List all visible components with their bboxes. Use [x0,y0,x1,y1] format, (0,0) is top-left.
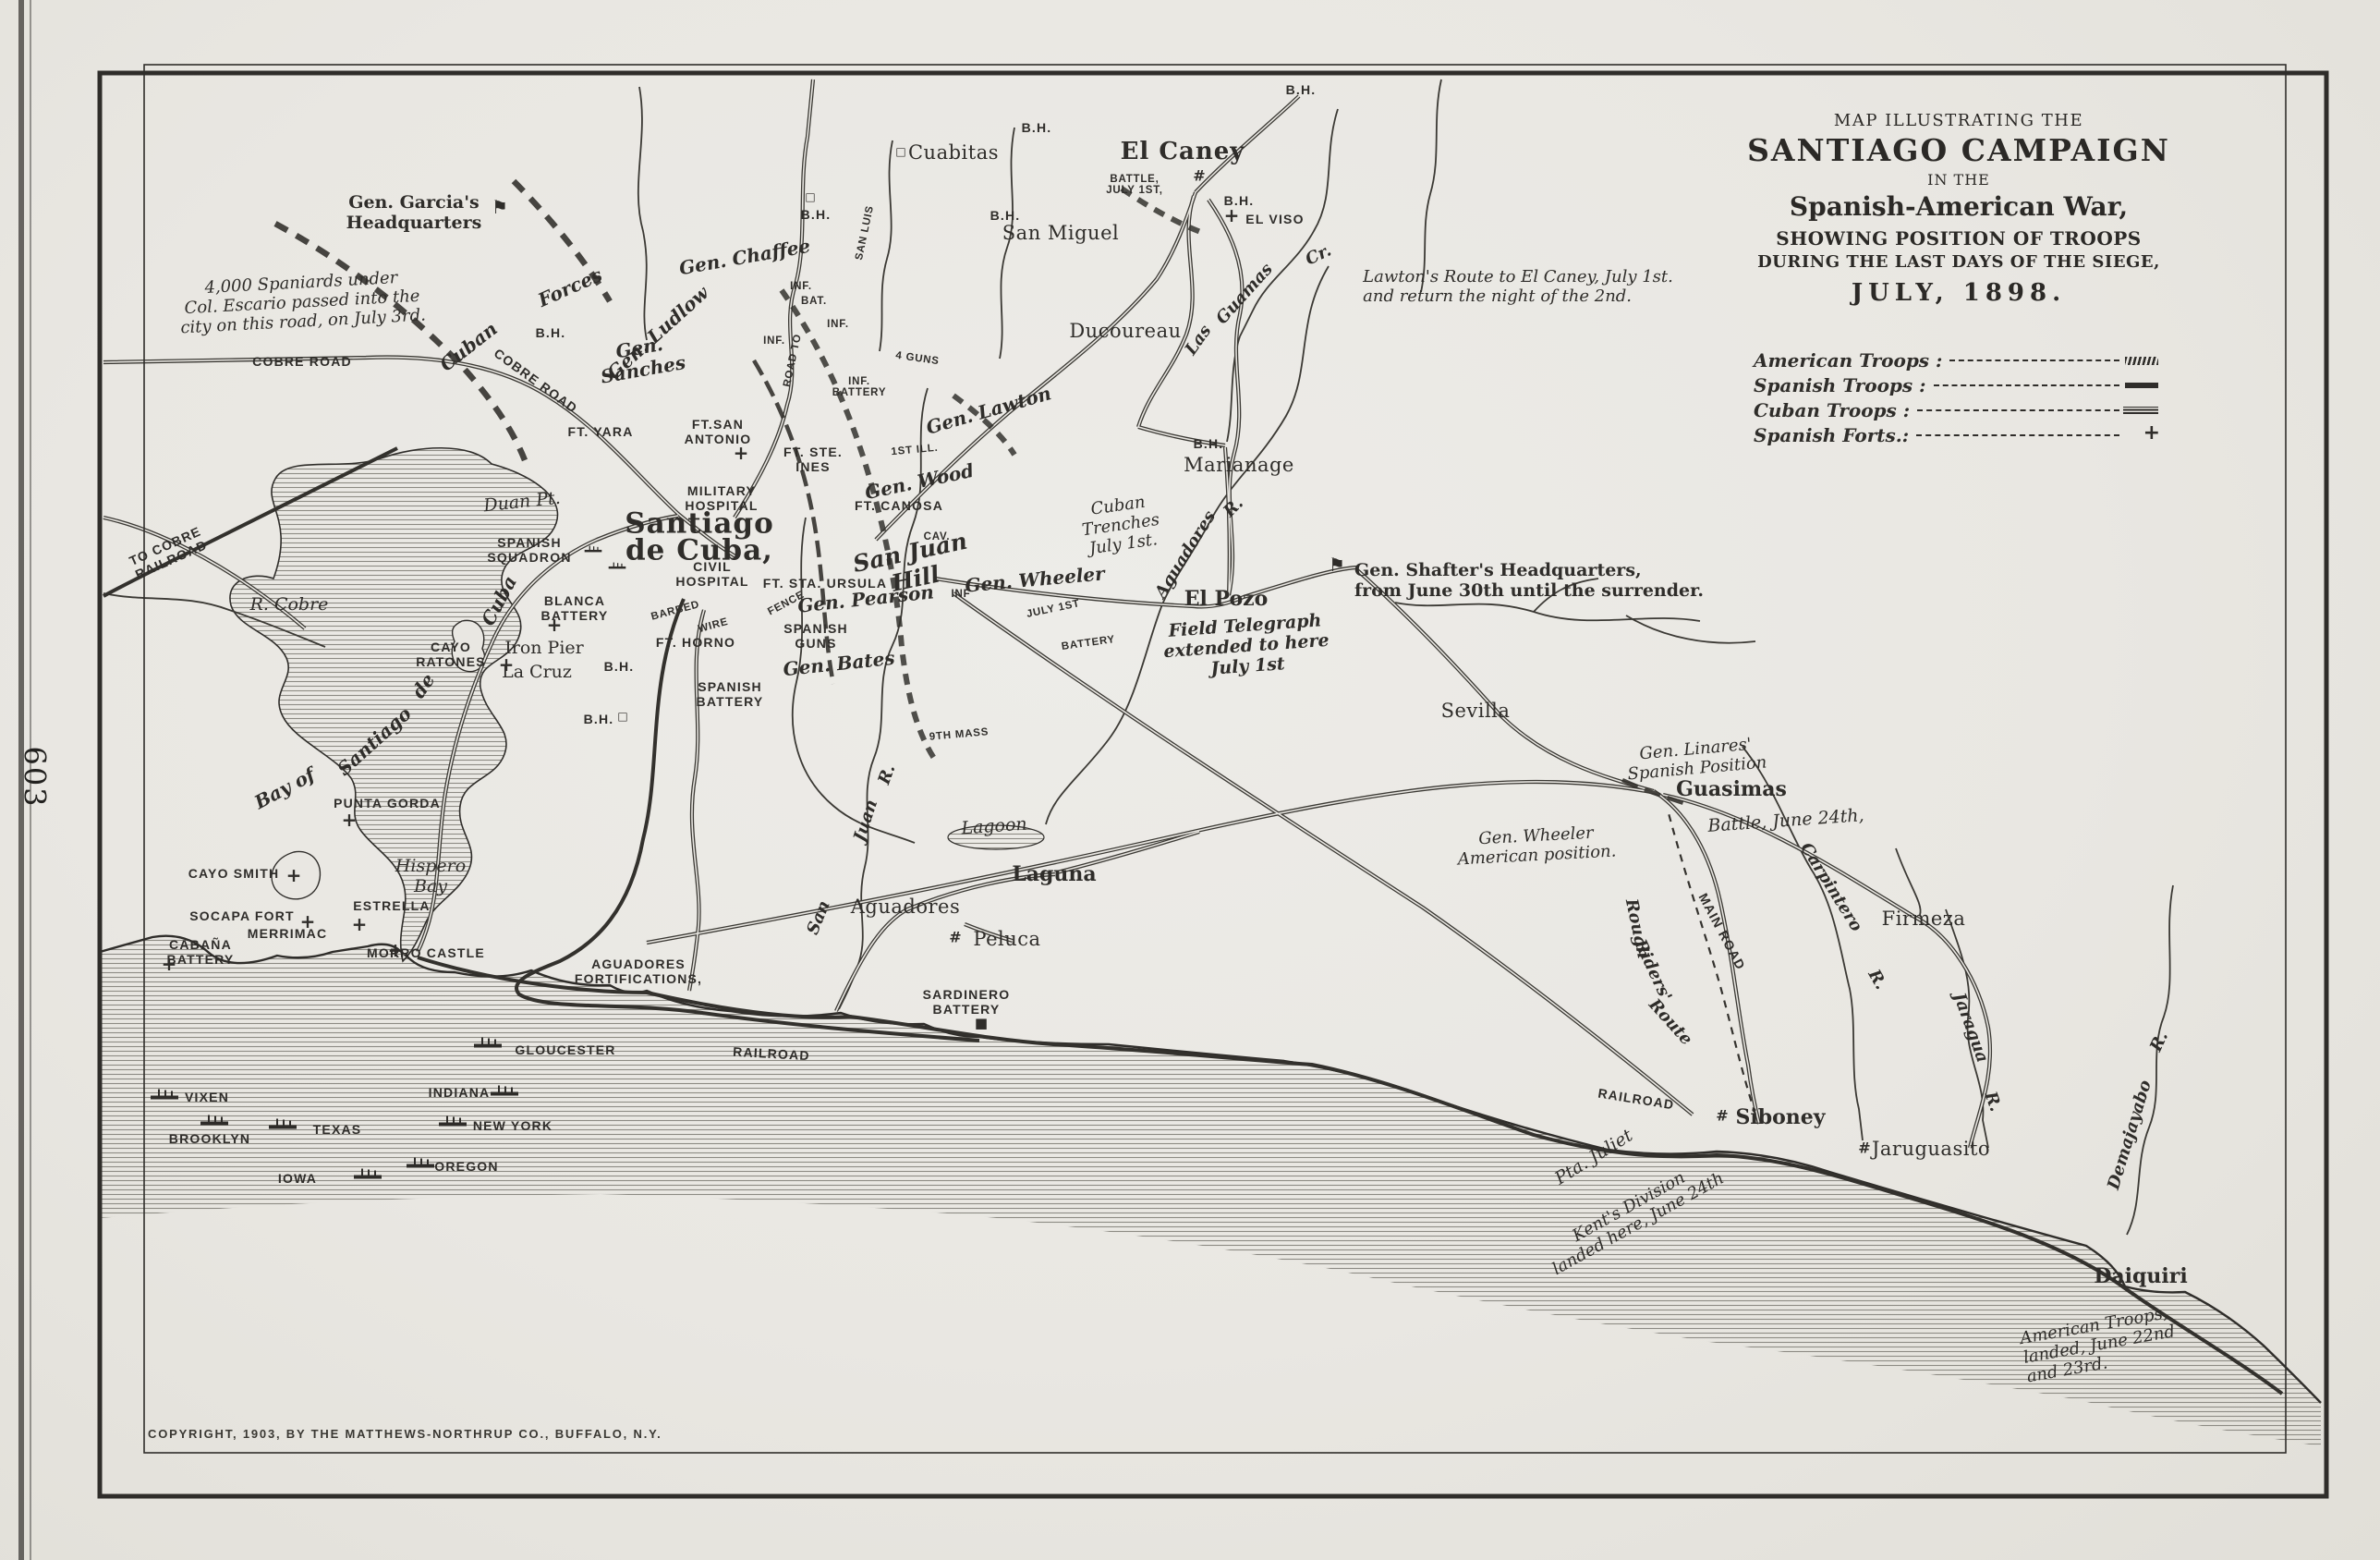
legend-item-label: Cuban Troops : [1754,399,1910,421]
map-title-block: MAP ILLUSTRATING THESANTIAGO CAMPAIGNIN … [1744,111,2173,307]
map-label: Aguadores [851,896,960,918]
map-label: Cuban Trenches July 1st. [1078,491,1163,559]
ship-icon [609,563,626,569]
map-label: Hispero Bay [395,856,466,896]
ship-icon [269,1119,297,1129]
map-label: CIVIL HOSPITAL [675,559,748,589]
map-label: NEW YORK [473,1118,552,1133]
garcia-hq-flag-icon: ⚑ [492,196,508,218]
legend-item: Spanish Troops : [1754,372,2158,397]
map-label: BAT. [801,296,827,307]
ship-icon [407,1158,434,1168]
map-label: MERRIMAC [248,926,328,941]
legend-item-label: American Troops : [1754,349,1942,372]
ship-icon [474,1038,502,1048]
ship-icon [491,1086,518,1096]
fort-cross-icon: + [1224,204,1240,226]
spanish-symbol [1934,380,2158,391]
map-label: INDIANA [429,1085,491,1100]
legend-item: Cuban Troops : [1754,397,2158,422]
map-label: El Caney [1121,138,1245,165]
map-label: FT. CANOSA [855,498,943,513]
map-label: Daiquiri [2094,1264,2187,1288]
town-grid-icon: # [1858,1140,1870,1157]
map-label: Guasimas [1676,777,1787,801]
map-label: TEXAS [313,1122,362,1137]
town-grid-icon: # [1193,167,1205,185]
map-label: B.H. [1286,82,1317,97]
fort-cross-icon: + [286,864,302,886]
map-label: EL VISO [1245,212,1304,226]
fort-cross-icon: + [352,913,368,935]
map-label: B.H. [1194,436,1224,451]
map-label: Gen. Shafter's Headquarters, from June 3… [1354,560,1704,601]
map-label: BROOKLYN [169,1131,250,1146]
ship-icon [439,1116,467,1127]
map-title-line: DURING THE LAST DAYS OF THE SIEGE, [1744,252,2173,272]
map-label: ESTRELLA [353,898,431,913]
map-label: SARDINERO BATTERY [923,987,1011,1017]
map-title-line: Spanish-American War, [1744,191,2173,222]
map-label: Firmeza [1882,908,1966,930]
map-label: INF. [790,281,812,292]
map-label: CAYO RATONES [416,640,486,669]
map-label: B.H. [536,325,566,340]
map-label: B.H. [1022,120,1052,135]
fort-cross-icon: + [388,939,404,961]
map-label: B.H. [801,207,832,222]
map-label: Ducoureau [1069,320,1181,342]
town-grid-icon: # [1716,1107,1728,1125]
map-label: Santiago de Cuba, [625,511,774,566]
map-label: Sevilla [1441,700,1511,722]
map-label: SPANISH GUNS [783,621,848,651]
ship-icon [200,1115,228,1126]
blockhouse-icon: □ [895,145,905,158]
fort-cross-icon: + [734,442,749,464]
battery-icon: ■ [975,1015,988,1031]
map-title-line: IN THE [1744,171,2173,189]
map-label: INF. [763,335,785,347]
map-title-line: MAP ILLUSTRATING THE [1744,111,2173,130]
map-label: Field Telegraph extended to here July 1s… [1161,610,1331,682]
map-label: VIXEN [185,1090,229,1104]
shafter-hq-flag-icon: ⚑ [1329,554,1345,576]
ship-icon [585,546,602,553]
map-label: B.H. [604,659,635,674]
ship-icon [354,1169,382,1179]
map-title-line: JULY, 1898. [1744,279,2173,307]
legend-item: Spanish Forts.: [1754,422,2158,447]
map-label: San Miguel [1002,222,1119,244]
map-label: Siboney [1735,1105,1825,1129]
legend-item-label: Spanish Troops : [1754,374,1926,396]
blockhouse-icon: □ [805,190,815,203]
map-label: B.H. [584,712,614,726]
blockhouse-icon: □ [617,710,627,723]
map-title-line: SHOWING POSITION OF TROOPS [1744,227,2173,250]
map-label: AGUADORES FORTIFICATIONS, [575,957,702,986]
map-label: R. Cobre [250,594,329,615]
american-symbol [1949,355,2158,366]
fort-cross-icon: + [342,809,358,831]
map-label: Jaruguasito [1872,1138,1990,1160]
map-label: El Pozo [1184,587,1269,611]
ship-icon [151,1090,178,1100]
page-number: 603 [18,746,53,808]
map-label: Cuabitas [908,141,999,164]
map-label: Iron Pier [504,638,584,658]
map-label: COBRE ROAD [252,354,352,369]
map-label: Lawton's Route to El Caney, July 1st. an… [1363,267,1673,306]
map-label: Laguna [1012,862,1096,886]
cuban-symbol [1917,405,2158,416]
map-label: CAYO SMITH [188,866,280,881]
sea-area [100,936,2321,1446]
map-legend: American Troops :Spanish Troops :Cuban T… [1754,347,2158,447]
map-label: INF. BATTERY [832,376,887,398]
map-label: CABAÑA BATTERY [167,937,235,967]
map-label: FT. YARA [567,424,633,439]
map-label: Peluca [973,928,1040,950]
map-page: 603 Gen. Garcia's Headquarters⚑4,000 Spa… [0,0,2380,1560]
map-label: BATTLE, JULY 1ST, [1106,174,1163,196]
map-label: SPANISH SQUADRON [487,535,571,565]
fort-cross-icon: + [162,953,177,975]
legend-item: American Troops : [1754,347,2158,372]
map-label: B.H. [990,208,1021,223]
map-label: Marianage [1184,454,1294,476]
fort-cross-icon: + [499,653,515,676]
map-label: GLOUCESTER [515,1042,615,1057]
map-label: OREGON [434,1159,498,1174]
map-label: Gen. Wheeler American position. [1456,823,1617,870]
map-label: MORRO CASTLE [367,945,485,960]
map-label: Gen. Garcia's Headquarters [346,192,482,233]
legend-item-label: Spanish Forts.: [1754,424,1909,446]
copyright-line: COPYRIGHT, 1903, BY THE MATTHEWS-NORTHRU… [148,1427,662,1441]
map-label: IOWA [278,1171,317,1186]
fort-cross-icon: + [547,614,563,636]
forts-symbol [1916,430,2158,441]
map-label: SPANISH BATTERY [697,679,764,709]
map-label: FT. HORNO [656,635,735,650]
map-label: FT. STE. INES [783,445,843,474]
map-label: SOCAPA FORT [189,908,295,923]
map-label: INF. [827,319,849,330]
map-title-line: SANTIAGO CAMPAIGN [1744,132,2173,168]
town-grid-icon: # [949,929,961,946]
